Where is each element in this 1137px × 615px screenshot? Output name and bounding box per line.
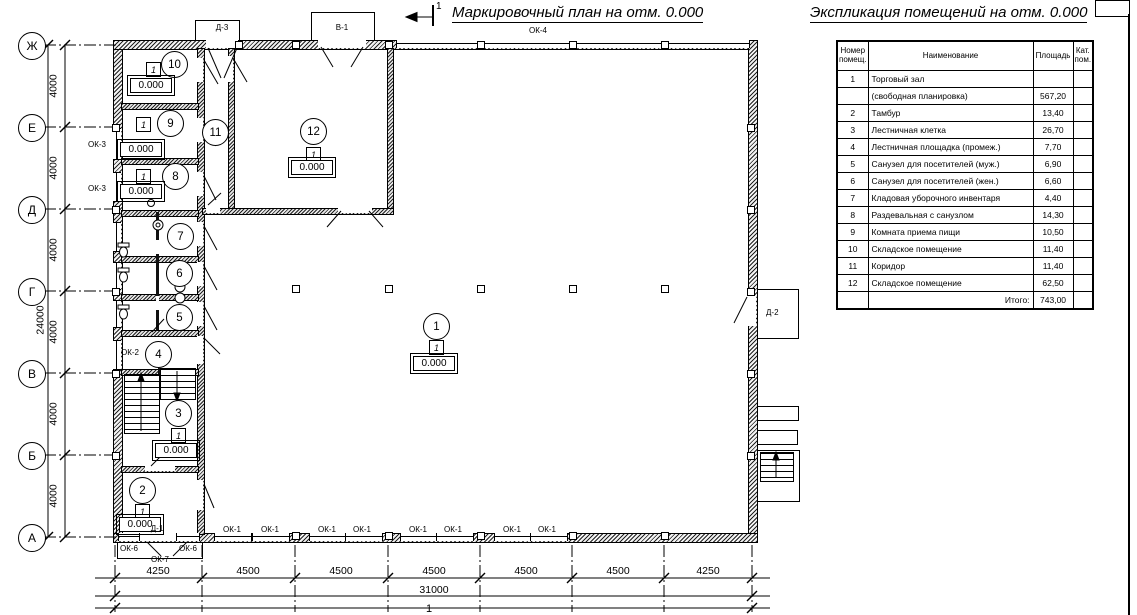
- column: [747, 370, 755, 378]
- floor-type-marker: 1: [146, 62, 161, 77]
- tag-d3: Д-3: [216, 23, 229, 32]
- cell-name: Коридор: [868, 258, 1033, 275]
- plan-title: Маркировочный план на отм. 0.000: [452, 4, 703, 23]
- door-swings: [147, 47, 747, 556]
- cell-name: Лестничная клетка: [868, 122, 1033, 139]
- section-mark-label-top: 1: [436, 1, 442, 12]
- room-bubble-11: 11: [202, 119, 229, 146]
- cell-name: (свободная планировка): [868, 88, 1033, 105]
- column: [477, 41, 485, 49]
- cell-num: 12: [837, 275, 868, 292]
- cell-num: 8: [837, 207, 868, 224]
- cell-cat: [1073, 71, 1093, 88]
- dim-4000: 4000: [48, 238, 60, 261]
- tag-ok2: ОК-2: [121, 348, 139, 357]
- section-cut-mark: [406, 5, 433, 26]
- column: [569, 285, 577, 293]
- table-row: 12Складское помещение62,50: [837, 275, 1093, 292]
- tag-v1: В-1: [336, 23, 348, 32]
- table-row: 5Санузел для посетителей (муж.)6,90: [837, 156, 1093, 173]
- dim-24000: 24000: [35, 305, 47, 334]
- room-bubble-8: 8: [162, 163, 189, 190]
- dim-31000: 31000: [419, 584, 448, 596]
- table-row: 4Лестничная площадка (промеж.)7,70: [837, 139, 1093, 156]
- cell-name: Санузел для посетителей (жен.): [868, 173, 1033, 190]
- table-row: 1Торговый зал: [837, 71, 1093, 88]
- cell-cat: [1073, 88, 1093, 105]
- column: [661, 285, 669, 293]
- cell-area: 6,60: [1033, 173, 1073, 190]
- cell-cat: [1073, 105, 1093, 122]
- col-header-num: Номер помещ.: [837, 41, 868, 71]
- column: [661, 532, 669, 540]
- cell-cat: [1073, 241, 1093, 258]
- room-bubble-1: 1: [423, 313, 450, 340]
- cell-area: 10,50: [1033, 224, 1073, 241]
- axis-bubble-zh: Ж: [18, 32, 46, 60]
- column: [112, 288, 120, 296]
- tag-ok1: ОК-1: [538, 525, 556, 534]
- column: [292, 41, 300, 49]
- dim-4500: 4500: [606, 565, 629, 577]
- cell-name: Складское помещение: [868, 275, 1033, 292]
- table-row: 6Санузел для посетителей (жен.)6,60: [837, 173, 1093, 190]
- tag-ok6: ОК-6: [120, 544, 138, 553]
- cell-num: 9: [837, 224, 868, 241]
- table-row: 10Складское помещение11,40: [837, 241, 1093, 258]
- elevation-box: 0.000: [120, 142, 162, 157]
- room-bubble-2: 2: [129, 477, 156, 504]
- section-mark-label-bottom: 1: [426, 603, 432, 615]
- column: [112, 370, 120, 378]
- cell-area: 7,70: [1033, 139, 1073, 156]
- tag-ok7: ОК-7: [151, 555, 169, 564]
- column: [385, 41, 393, 49]
- column: [292, 285, 300, 293]
- cell-total-area: 743,00: [1033, 292, 1073, 310]
- column: [477, 532, 485, 540]
- explication-title: Экспликация помещений на отм. 0.000: [810, 4, 1087, 23]
- dim-4000: 4000: [48, 320, 60, 343]
- drawing-sheet: Маркировочный план на отм. 0.000 Эксплик…: [0, 0, 1137, 615]
- cell-cat: [1073, 122, 1093, 139]
- cell-num: 1: [837, 71, 868, 88]
- cell-name: Складское помещение: [868, 241, 1033, 258]
- explication-table: Номер помещ. Наименование Площадь Кат. п…: [836, 40, 1094, 310]
- cell-area: 6,90: [1033, 156, 1073, 173]
- col-header-area: Площадь: [1033, 41, 1073, 71]
- column: [112, 452, 120, 460]
- cell-name: Лестничная площадка (промеж.): [868, 139, 1033, 156]
- column: [747, 288, 755, 296]
- cell-area: 11,40: [1033, 241, 1073, 258]
- room-bubble-7: 7: [167, 223, 194, 250]
- col-header-cat: Кат. пом.: [1073, 41, 1093, 71]
- dim-4000: 4000: [48, 484, 60, 507]
- stair-arrows: [138, 371, 779, 478]
- cell-area: 4,40: [1033, 190, 1073, 207]
- elevation-box: 0.000: [120, 184, 162, 199]
- cell-num: 2: [837, 105, 868, 122]
- cell-cat: [1073, 173, 1093, 190]
- col-header-name: Наименование: [868, 41, 1033, 71]
- cell-cat: [1073, 207, 1093, 224]
- column: [292, 532, 300, 540]
- tag-ok1: ОК-1: [409, 525, 427, 534]
- dim-4000: 4000: [48, 402, 60, 425]
- table-row: 3Лестничная клетка26,70: [837, 122, 1093, 139]
- table-row: 9Комната приема пищи10,50: [837, 224, 1093, 241]
- cell-name: Торговый зал: [868, 71, 1033, 88]
- table-total-row: Итого:743,00: [837, 292, 1093, 310]
- cell-name: Комната приема пищи: [868, 224, 1033, 241]
- cell-name: Тамбур: [868, 105, 1033, 122]
- elevation-box: 0.000: [291, 160, 333, 175]
- cell-cat: [1073, 224, 1093, 241]
- tag-ok3: ОК-3: [88, 140, 106, 149]
- room-bubble-4: 4: [145, 341, 172, 368]
- elevation-box: 0.000: [130, 78, 172, 93]
- cell-num: 4: [837, 139, 868, 156]
- tag-ok3: ОК-3: [88, 184, 106, 193]
- table-row: (свободная планировка)567,20: [837, 88, 1093, 105]
- floor-type-marker: 1: [136, 169, 151, 184]
- cell-cat: [1073, 156, 1093, 173]
- tag-ok1: ОК-1: [503, 525, 521, 534]
- cell-name: Кладовая уборочного инвентаря: [868, 190, 1033, 207]
- axis-bubble-v: В: [18, 360, 46, 388]
- cell-cat: [1073, 292, 1093, 310]
- column: [235, 41, 243, 49]
- cell-area: 13,40: [1033, 105, 1073, 122]
- axis-bubble-e: Е: [18, 114, 46, 142]
- tag-d2: Д-2: [766, 308, 779, 317]
- room-bubble-10: 10: [161, 51, 188, 78]
- column: [661, 41, 669, 49]
- cell-num: 3: [837, 122, 868, 139]
- cell-cat: [1073, 258, 1093, 275]
- cell-area: [1033, 71, 1073, 88]
- cell-area: 567,20: [1033, 88, 1073, 105]
- axis-bubble-g: Г: [18, 278, 46, 306]
- column: [385, 532, 393, 540]
- cell-num: [837, 88, 868, 105]
- cell-name: Раздевальная с санузлом: [868, 207, 1033, 224]
- sheet-frame-line: [1128, 14, 1130, 615]
- room-bubble-6: 6: [166, 260, 193, 287]
- tag-ok4: ОК-4: [529, 26, 547, 35]
- sheet-frame-corner: [1095, 0, 1130, 17]
- cell-name: Санузел для посетителей (муж.): [868, 156, 1033, 173]
- room-bubble-9: 9: [157, 110, 184, 137]
- cell-area: 26,70: [1033, 122, 1073, 139]
- table-row: 7Кладовая уборочного инвентаря4,40: [837, 190, 1093, 207]
- room-bubble-12: 12: [300, 118, 327, 145]
- table-row: 8Раздевальная с санузлом14,30: [837, 207, 1093, 224]
- cell-cat: [1073, 190, 1093, 207]
- floor-type-marker: 1: [136, 117, 151, 132]
- floor-type-marker: 1: [429, 340, 444, 355]
- floor-type-marker: 1: [171, 428, 186, 443]
- tag-ok1: ОК-1: [223, 525, 241, 534]
- dim-4000: 4000: [48, 74, 60, 97]
- column: [569, 532, 577, 540]
- tag-d1: Д-1: [151, 524, 164, 533]
- dim-4500: 4500: [514, 565, 537, 577]
- column: [112, 124, 120, 132]
- axis-bubble-d: Д: [18, 196, 46, 224]
- table-row: 11Коридор11,40: [837, 258, 1093, 275]
- cell-num: 5: [837, 156, 868, 173]
- room-bubble-3: 3: [165, 400, 192, 427]
- cell-num: 11: [837, 258, 868, 275]
- axis-bubble-a: А: [18, 524, 46, 552]
- dim-4250: 4250: [696, 565, 719, 577]
- dim-4250: 4250: [146, 565, 169, 577]
- column: [747, 124, 755, 132]
- tag-ok1: ОК-1: [444, 525, 462, 534]
- cell-area: 14,30: [1033, 207, 1073, 224]
- tag-ok1: ОК-1: [261, 525, 279, 534]
- cell-num: 10: [837, 241, 868, 258]
- tag-ok6: ОК-6: [179, 544, 197, 553]
- elevation-box: 0.000: [413, 356, 455, 371]
- column: [747, 206, 755, 214]
- dim-4500: 4500: [329, 565, 352, 577]
- room-bubble-5: 5: [166, 304, 193, 331]
- cell-num: [837, 292, 868, 310]
- column: [477, 285, 485, 293]
- cell-total-label: Итого:: [868, 292, 1033, 310]
- column: [747, 452, 755, 460]
- dim-4000: 4000: [48, 156, 60, 179]
- dim-4500: 4500: [422, 565, 445, 577]
- elevation-box: 0.000: [155, 443, 197, 458]
- cell-cat: [1073, 275, 1093, 292]
- cell-area: 11,40: [1033, 258, 1073, 275]
- column: [112, 206, 120, 214]
- axis-bubble-b: Б: [18, 442, 46, 470]
- dim-4500: 4500: [236, 565, 259, 577]
- tag-ok1: ОК-1: [318, 525, 336, 534]
- table-row: 2Тамбур13,40: [837, 105, 1093, 122]
- column: [569, 41, 577, 49]
- cell-area: 62,50: [1033, 275, 1073, 292]
- cell-num: 7: [837, 190, 868, 207]
- tag-ok1: ОК-1: [353, 525, 371, 534]
- cell-num: 6: [837, 173, 868, 190]
- table-header-row: Номер помещ. Наименование Площадь Кат. п…: [837, 41, 1093, 71]
- cell-cat: [1073, 139, 1093, 156]
- column: [385, 285, 393, 293]
